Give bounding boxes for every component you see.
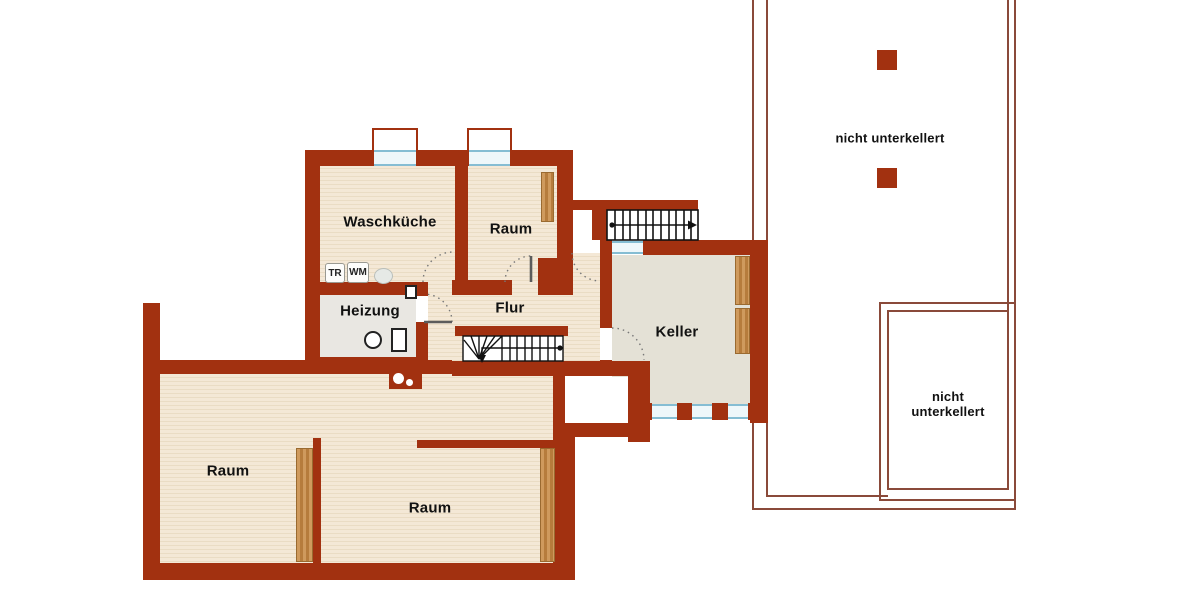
keller-window xyxy=(652,404,677,419)
outline-left-lower-inner xyxy=(766,420,768,497)
column-marker-bottom xyxy=(877,168,897,188)
wall-raum-divider xyxy=(313,438,321,565)
wall-lower-west xyxy=(143,303,160,580)
room-label-flur: Flur xyxy=(495,300,524,317)
outline-bottom-outer xyxy=(752,508,1016,510)
room-label-raum-bottom: Raum xyxy=(409,500,451,517)
builtin-raum-bottom-east xyxy=(540,448,555,562)
wall-lower-east xyxy=(553,437,575,580)
builtin-raum-top xyxy=(541,172,554,222)
wall-waschkueche-raum-divider xyxy=(455,165,468,295)
wall-keller-north-a xyxy=(600,240,612,255)
washer-box: WM xyxy=(347,262,369,283)
exterior-staircase xyxy=(607,210,698,240)
room-keller-floor xyxy=(612,255,750,377)
builtin-keller-shelf-lower xyxy=(735,308,750,354)
window-waschkueche xyxy=(374,150,416,166)
outline-left-upper-outer xyxy=(752,0,754,245)
wall-raum-corner xyxy=(538,258,557,295)
wall-heizung-east-upper xyxy=(416,282,428,296)
room-label-raum-top: Raum xyxy=(490,221,532,238)
annotation-not-basement-top: nicht unterkellert xyxy=(835,131,944,146)
room-label-heizung: Heizung xyxy=(340,303,400,320)
window-raum-top xyxy=(469,150,510,166)
washer-label: WM xyxy=(349,267,367,278)
basement-floorplan: TR WM xyxy=(0,0,1200,600)
dryer-label: TR xyxy=(328,268,341,279)
wall-keller-east xyxy=(750,240,768,423)
equipment-rect xyxy=(391,328,407,352)
wall-segment xyxy=(416,150,469,166)
chimney-flue xyxy=(405,285,417,299)
wall-raum-bottom-stub xyxy=(417,440,557,448)
dryer-box: TR xyxy=(325,263,345,283)
sink-basin xyxy=(374,268,393,284)
wall-stairs-north xyxy=(455,326,568,336)
keller-entry-door-glass xyxy=(612,241,643,254)
room-label-raum-left: Raum xyxy=(207,463,249,480)
wall-block-east xyxy=(557,150,573,295)
tank-circle-large xyxy=(393,373,404,384)
wall-raum-south xyxy=(452,280,512,295)
wall-keller-south-seg xyxy=(748,403,752,420)
tank-circle-small xyxy=(406,379,413,386)
wall-keller-west-upper xyxy=(600,255,612,328)
wall-flur-ne xyxy=(557,240,573,253)
room-keller-floor-lower xyxy=(650,377,750,404)
outline-left-lower-outer xyxy=(752,420,754,510)
wall-keller-south-pillar xyxy=(712,403,728,420)
wall-heizung-east-lower xyxy=(416,322,428,362)
outline-left-upper-inner xyxy=(766,0,768,245)
annotation-not-basement-bottom: nicht unterkellert xyxy=(900,389,996,419)
keller-window xyxy=(692,404,712,419)
wall-west xyxy=(305,150,320,373)
outline-bottom-inner xyxy=(766,495,888,497)
wall-keller-west-stub xyxy=(600,360,612,376)
wall-keller-south-pillar xyxy=(677,403,692,420)
builtin-raum-left-divider xyxy=(296,448,313,562)
keller-window xyxy=(728,404,748,419)
room-label-keller: Keller xyxy=(656,324,699,341)
room-label-waschkueche: Waschküche xyxy=(343,214,436,231)
wall-lower-south xyxy=(143,563,575,580)
column-marker-top xyxy=(877,50,897,70)
wall-keller-south-seg xyxy=(640,403,652,420)
builtin-keller-shelf-upper xyxy=(735,256,750,305)
wall-stairs-south xyxy=(452,361,650,376)
wall-waschkueche-south xyxy=(305,282,420,295)
boiler-circle xyxy=(364,331,382,349)
wall-extstairs-north xyxy=(570,200,698,210)
